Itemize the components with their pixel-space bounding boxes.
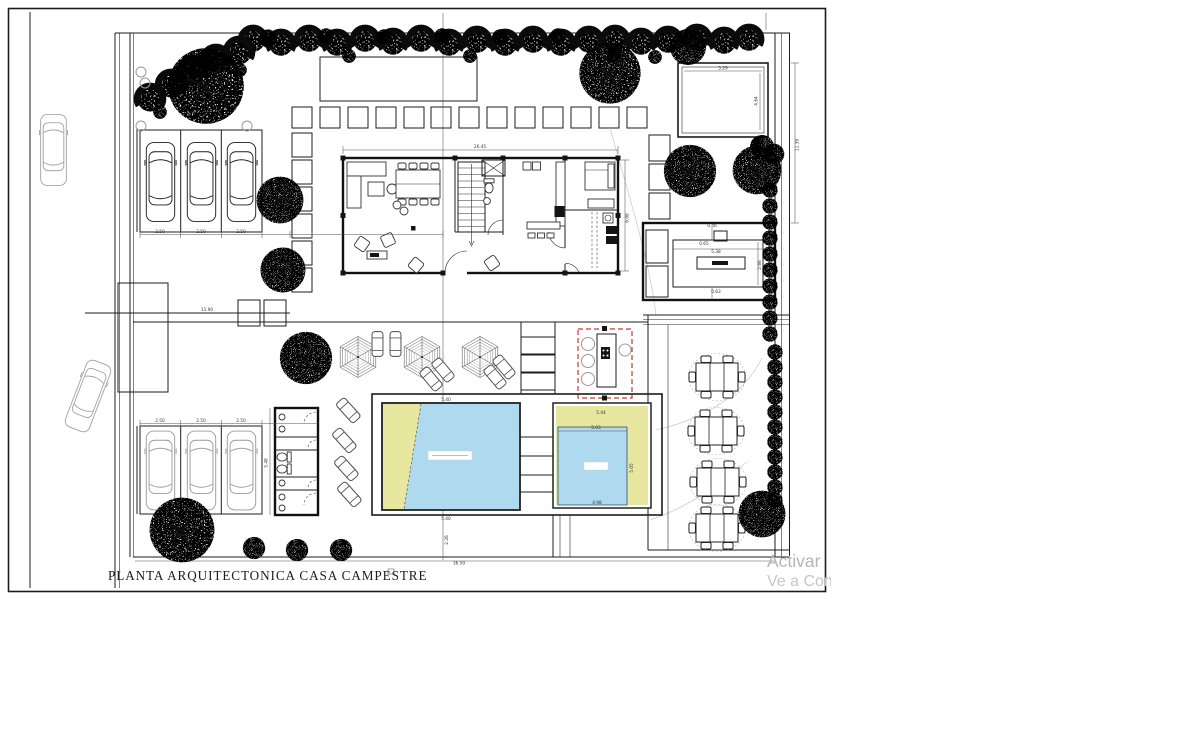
- pool-left: [382, 403, 520, 510]
- svg-text:36.50: 36.50: [453, 561, 466, 567]
- sun-lounger: [390, 332, 401, 357]
- svg-text:6.08: 6.08: [625, 213, 631, 223]
- svg-text:5.38: 5.38: [711, 249, 721, 255]
- house: [341, 146, 630, 276]
- parked-car: [226, 431, 257, 510]
- living-dining: [347, 162, 500, 273]
- parked-car: [186, 143, 217, 222]
- sun-loungers-poolside: [332, 397, 363, 508]
- parked-car: [186, 431, 217, 510]
- palapas: [85, 313, 648, 394]
- tree: [257, 177, 304, 224]
- bar-red-outline: [578, 329, 632, 398]
- windows-activation-watermark: Activar Ve a Conf: [767, 551, 838, 590]
- svg-text:4.64: 4.64: [754, 96, 760, 106]
- tree: [150, 498, 215, 563]
- tree: [670, 29, 706, 65]
- outdoor-bar: [578, 326, 632, 401]
- svg-text:2.50: 2.50: [155, 418, 165, 424]
- outdoor-table-4: [689, 505, 746, 552]
- svg-text:26.45: 26.45: [474, 144, 487, 150]
- pool-area: [135, 394, 775, 561]
- kitchen: [523, 162, 565, 238]
- court-steps-ne: [521, 322, 555, 394]
- watermark-line2: Ve a Conf: [767, 573, 838, 590]
- svg-text:0.53: 0.53: [765, 238, 775, 244]
- pool-bathrooms: [270, 408, 318, 515]
- svg-text:4.98: 4.98: [592, 500, 602, 506]
- svg-text:2.50: 2.50: [236, 418, 246, 424]
- svg-text:0.46: 0.46: [707, 223, 717, 229]
- stove: [555, 206, 565, 217]
- svg-text:2.66: 2.66: [757, 260, 763, 270]
- outdoor-table-2: [688, 408, 745, 455]
- tree: [664, 145, 716, 197]
- tree-cluster-left: [137, 39, 252, 124]
- bar-grill: [601, 347, 610, 359]
- outdoor-table-1: [689, 354, 746, 401]
- paver-row-top: [292, 107, 647, 128]
- driveway: [118, 283, 168, 392]
- svg-text:11.90: 11.90: [201, 307, 214, 313]
- svg-text:5.05: 5.05: [629, 463, 635, 473]
- svg-text:5.40: 5.40: [441, 516, 451, 522]
- palapa-1: [340, 336, 376, 377]
- outdoor-table-3: [690, 459, 747, 506]
- street-car-1: [39, 114, 67, 185]
- svg-text:5.44: 5.44: [596, 410, 606, 416]
- street: [30, 12, 120, 588]
- sofa: [347, 162, 386, 176]
- svg-text:2.26: 2.26: [444, 535, 450, 545]
- parked-car: [226, 143, 257, 222]
- bedroom: [585, 162, 617, 268]
- svg-text:5.29: 5.29: [718, 66, 728, 72]
- grill: [712, 261, 728, 265]
- tree: [579, 42, 640, 103]
- svg-text:0.65: 0.65: [699, 241, 709, 247]
- svg-text:2.50: 2.50: [155, 229, 165, 235]
- svg-text:2.50: 2.50: [196, 229, 206, 235]
- bar-counter: [597, 334, 616, 387]
- tree: [261, 248, 306, 293]
- pool-steps-middle: [520, 437, 556, 492]
- shrub: [243, 537, 265, 559]
- sun-lounger: [372, 332, 383, 357]
- staircase: [458, 160, 505, 246]
- main-door-gap: [445, 271, 467, 276]
- svg-text:2.50: 2.50: [236, 229, 246, 235]
- watermark-line1: Activar: [767, 551, 821, 571]
- bar-stool: [582, 338, 595, 351]
- shrub: [330, 539, 352, 561]
- bar-stool: [619, 344, 631, 356]
- svg-text:0.63: 0.63: [711, 289, 721, 295]
- svg-text:5.40: 5.40: [441, 397, 451, 403]
- pool-right: [553, 403, 651, 508]
- bar-stool: [582, 373, 595, 386]
- dining-set: [393, 163, 440, 215]
- street-car-2: [62, 358, 114, 434]
- large-tree: [168, 48, 244, 124]
- shrub: [286, 539, 308, 561]
- parked-car: [145, 431, 176, 510]
- svg-text:2.50: 2.50: [196, 418, 206, 424]
- floor-plan-page: 5.29 4.64 11.39 26.45 6.08 0.46 0.65 5.3…: [0, 0, 1197, 748]
- paver-column-left: [238, 133, 312, 326]
- drawing-title: PLANTA ARQUITECTONICA CASA CAMPESTRE: [108, 568, 427, 583]
- svg-text:5.48: 5.48: [264, 458, 270, 468]
- svg-text:5.03: 5.03: [591, 425, 601, 431]
- bbq-area: [643, 223, 775, 300]
- svg-text:11.39: 11.39: [795, 139, 801, 152]
- tree: [280, 332, 332, 384]
- coffee-table: [368, 182, 384, 196]
- bar-stool: [582, 355, 595, 368]
- plan-drawing: 5.29 4.64 11.39 26.45 6.08 0.46 0.65 5.3…: [0, 0, 1197, 748]
- parked-car: [145, 143, 176, 222]
